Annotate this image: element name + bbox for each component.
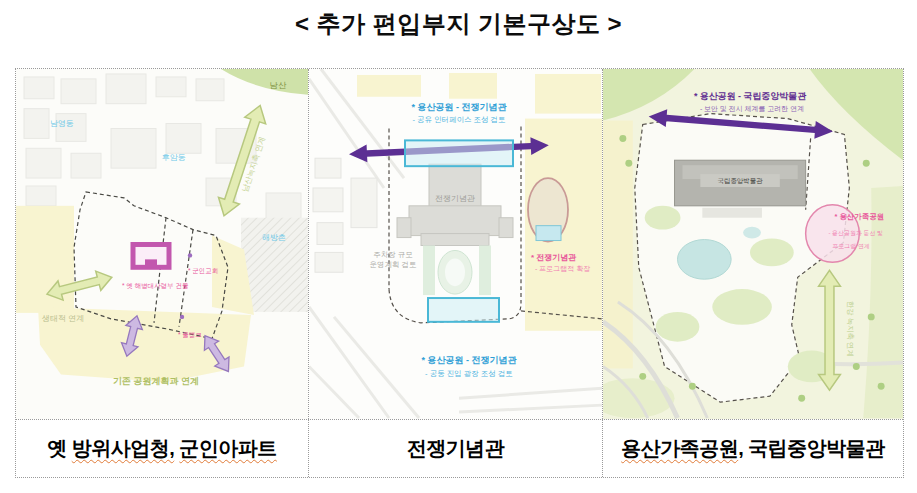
- caption-text-underlined: 방위사업청,: [72, 435, 175, 462]
- park-plan-link-label: 기존 공원계획과 연계: [113, 376, 199, 386]
- han-river-axis-label: 한강 녹지축 연계: [846, 301, 855, 357]
- family-park-title: * 용산가족공원: [834, 212, 884, 221]
- haebangchon-label: 해방촌: [262, 233, 286, 242]
- hq-building-label: * 옛 해병대사령부 건물: [122, 282, 188, 289]
- program-expansion-area: [528, 178, 568, 241]
- top-link-sub: - 보안 및 전시 체계를 고려한 연계: [700, 105, 804, 113]
- map-row: 남산 남영동 후암동 해방촌 남산녹지축 연계 생태적 연계 * 옛 해병대사령…: [16, 69, 903, 419]
- memorial-note-sub: - 프로그램적 확장: [535, 265, 590, 272]
- church-marker: [188, 253, 192, 257]
- map-panel-defense-agency: 남산 남영동 후암동 해방촌 남산녹지축 연계 생태적 연계 * 옛 해병대사령…: [16, 69, 308, 419]
- parking-note-line2: 운영계획 검토: [370, 260, 417, 269]
- top-link-title: * 용산공원 - 국립중앙박물관: [694, 91, 806, 101]
- map-panel-museum-park: * 용산공원 - 국립중앙박물관 - 보안 및 전시 체계를 고려한 연계 국립…: [602, 69, 903, 419]
- watertank-marker: [180, 315, 184, 319]
- huamdong-label: 후암동: [162, 153, 186, 162]
- caption-text: , 국립중앙박물관: [738, 435, 885, 462]
- caption-row: 옛 방위사업청, 군인아파트 전쟁기념관 용산가족공원, 국립중앙박물관: [16, 419, 903, 477]
- memorial-note-title: * 전쟁기념관: [531, 253, 576, 262]
- family-park-sub1: - 용산공원과 동선 및: [828, 230, 883, 237]
- watertank-label: * 물탱크: [178, 331, 202, 338]
- caption-war-memorial: 전쟁기념관: [308, 420, 602, 477]
- eco-link-label: 생태적 연계: [42, 314, 84, 323]
- namsan-label: 남산: [270, 80, 288, 90]
- map-defense-agency: 남산 남영동 후암동 해방촌 남산녹지축 연계 생태적 연계 * 옛 해병대사령…: [16, 69, 308, 419]
- caption-defense-agency: 옛 방위사업청, 군인아파트: [16, 420, 308, 477]
- map-war-memorial: * 용산공원 - 전쟁기념관 - 공유 인터페이스 조성 검토 전쟁기념관 주차…: [309, 69, 602, 419]
- family-park-sub2: 프로그램 연계: [832, 243, 869, 249]
- entry-plaza-zone: [428, 298, 499, 322]
- map-panel-war-memorial: * 용산공원 - 전쟁기념관 - 공유 인터페이스 조성 검토 전쟁기념관 주차…: [308, 69, 602, 419]
- bottom-link-title: * 용산공원 - 전쟁기념관: [422, 356, 517, 366]
- memorial-plaza: [423, 245, 491, 295]
- museum-label: 국립중앙박물관: [718, 177, 764, 184]
- caption-text-underlined: 용산가족공원: [621, 435, 738, 462]
- top-link-sub: - 공유 인터페이스 조성 검토: [412, 115, 505, 124]
- page-title: < 추가 편입부지 기본구상도 >: [0, 8, 917, 40]
- church-label: * 군인교회: [188, 267, 218, 274]
- caption-museum-park: 용산가족공원, 국립중앙박물관: [602, 420, 903, 477]
- memorial-building-label: 전쟁기념관: [435, 194, 475, 203]
- caption-text: 옛: [47, 435, 72, 462]
- namyeongdong-label: 남영동: [50, 119, 74, 128]
- parking-note-line1: 주차장 규모: [373, 250, 413, 259]
- interface-zone: [405, 140, 513, 166]
- caption-text: 전쟁기념관: [407, 435, 505, 462]
- bottom-link-sub: - 공동 진입 광장 조성 검토: [425, 369, 513, 378]
- caption-text-underlined: 군인아파트: [179, 435, 277, 462]
- concept-map-figure: 남산 남영동 후암동 해방촌 남산녹지축 연계 생태적 연계 * 옛 해병대사령…: [15, 68, 904, 478]
- top-link-title: * 용산공원 - 전쟁기념관: [412, 102, 507, 112]
- map-museum-park: * 용산공원 - 국립중앙박물관 - 보안 및 전시 체계를 고려한 연계 국립…: [603, 69, 903, 419]
- hq-building-marker: [133, 244, 169, 267]
